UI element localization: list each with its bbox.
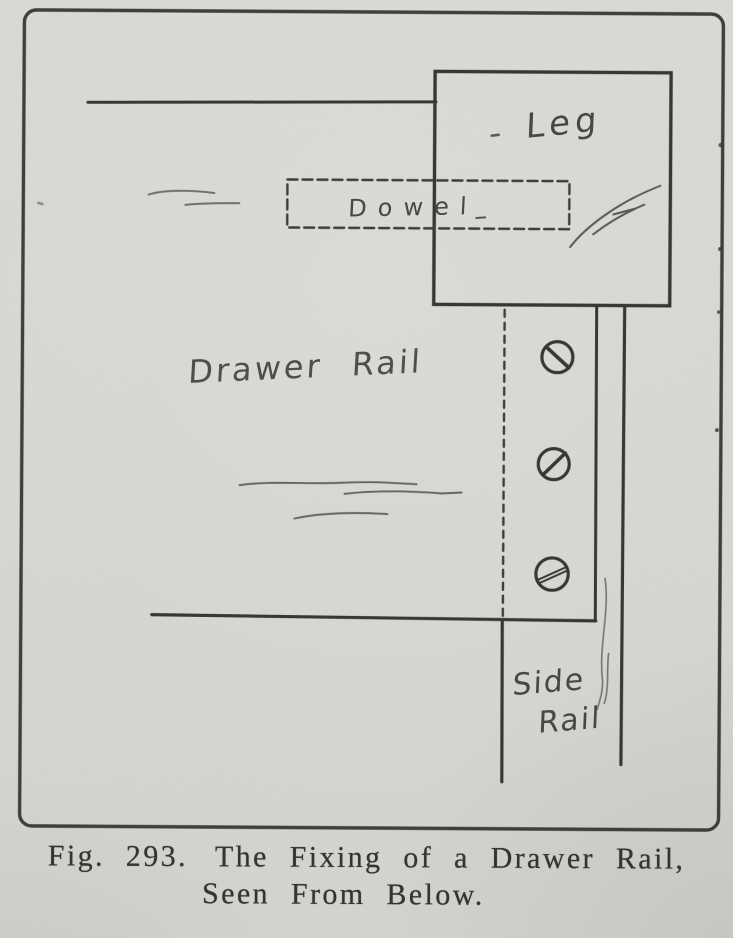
pencil-stroke-upper [148,191,214,195]
ink-blob [717,310,721,314]
ink-blob [715,428,719,432]
figure-caption: Fig. 293. The Fixing of a Drawer Rail, S… [0,839,733,914]
side-rail-lower-left-edge [501,621,502,782]
screw-icon [538,449,569,480]
scanned-page: Leg Dowel Drawer Rail Side Rail Fig. 293… [0,0,733,938]
figure-number: Fig. 293. [48,839,188,874]
figure-diagram: Leg Dowel Drawer Rail Side Rail [0,0,733,938]
figure-title-line2: Seen From Below. [0,876,733,914]
side-rail-label-line1: Side [512,665,586,701]
figure-title-line1: The Fixing of a Drawer Rail, [215,840,686,876]
pencil-stroke-upper [185,203,239,205]
side-rail-label-line2: Rail [538,704,602,739]
pencil-stroke-leg-curve [593,204,644,234]
dowel-label: Dowel [348,194,478,221]
pencil-stroke-side-rail [597,578,606,709]
pencil-dot-near-leg-label [492,135,499,136]
leg-label: Leg [525,102,602,144]
pencil-stroke-mid [294,513,387,520]
hidden-edge-dashed-line [503,310,505,617]
drawer-rail-top-edge [88,100,436,105]
drawer-rail-label: Drawer Rail [188,345,424,388]
pencil-stroke-mid [345,491,462,494]
side-rail-right-edge [621,307,625,765]
ink-blob [718,247,722,251]
screw-icon [536,558,569,591]
page-border [20,10,724,830]
pencil-stroke-mid [240,481,417,486]
paper-speck [38,203,42,204]
drawer-rail-bottom-edge [152,615,596,621]
ink-blob [718,143,722,147]
pencil-stroke-side-rail [604,653,608,703]
diagram-linework [0,0,733,938]
screw-icon [542,342,573,373]
pencil-stroke-leg-curve [570,185,660,248]
side-rail-left-edge [595,306,597,618]
